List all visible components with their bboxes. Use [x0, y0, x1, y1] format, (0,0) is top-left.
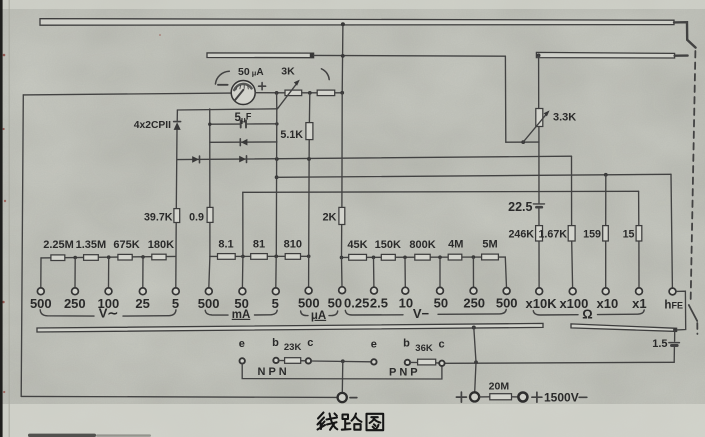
- svg-text:10: 10: [399, 296, 413, 311]
- svg-text:c: c: [438, 339, 444, 351]
- svg-text:hFE: hFE: [664, 299, 683, 311]
- svg-text:100: 100: [98, 296, 120, 311]
- svg-text:23K: 23K: [284, 342, 302, 353]
- svg-text:1.5: 1.5: [652, 338, 667, 350]
- svg-text:246K: 246K: [508, 228, 534, 240]
- svg-text:5: 5: [272, 296, 279, 311]
- svg-text:36K: 36K: [415, 343, 433, 354]
- svg-text:15: 15: [623, 228, 635, 240]
- svg-text:0.9: 0.9: [189, 211, 204, 223]
- svg-text:x10: x10: [597, 296, 619, 311]
- svg-text:250: 250: [64, 296, 86, 311]
- svg-text:1500V: 1500V: [544, 390, 579, 404]
- svg-text:50: 50: [234, 296, 248, 311]
- svg-text:1.67K: 1.67K: [538, 228, 567, 240]
- svg-text:b: b: [403, 338, 410, 350]
- svg-text:5: 5: [172, 296, 179, 311]
- svg-text:50 μA: 50 μA: [238, 66, 264, 78]
- svg-text:81: 81: [253, 239, 265, 251]
- svg-text:25: 25: [135, 296, 149, 311]
- svg-text:8.1: 8.1: [218, 239, 233, 251]
- svg-text:e: e: [239, 338, 245, 350]
- svg-text:μA: μA: [311, 310, 326, 322]
- svg-text:150K: 150K: [375, 239, 401, 251]
- svg-text:2.25M: 2.25M: [43, 239, 74, 251]
- svg-text:500: 500: [198, 296, 220, 311]
- svg-text:PNP: PNP: [389, 367, 421, 379]
- svg-text:b: b: [272, 337, 279, 349]
- svg-text:675K: 675K: [113, 239, 139, 251]
- svg-text:50: 50: [434, 296, 448, 311]
- svg-text:39.7K: 39.7K: [144, 211, 173, 223]
- svg-text:810: 810: [284, 239, 302, 251]
- svg-text:800K: 800K: [409, 239, 435, 251]
- svg-text:180K: 180K: [148, 239, 174, 251]
- svg-text:22.5: 22.5: [508, 200, 532, 214]
- svg-text:500: 500: [298, 296, 320, 311]
- svg-text:NPN: NPN: [258, 366, 290, 378]
- svg-text:45K: 45K: [347, 239, 367, 251]
- svg-text:159: 159: [583, 228, 601, 240]
- svg-text:e: e: [371, 339, 377, 351]
- svg-text:0.25: 0.25: [344, 296, 369, 311]
- svg-text:5.1K: 5.1K: [280, 129, 303, 141]
- svg-text:50: 50: [328, 296, 342, 311]
- svg-text:x100: x100: [559, 296, 588, 311]
- svg-text:3.3K: 3.3K: [553, 112, 576, 124]
- svg-text:250: 250: [463, 296, 485, 311]
- svg-text:2K: 2K: [322, 212, 336, 224]
- svg-text:c: c: [307, 337, 313, 349]
- svg-text:x1: x1: [632, 296, 646, 311]
- svg-text:500: 500: [30, 296, 52, 311]
- svg-text:1.35M: 1.35M: [76, 239, 107, 251]
- svg-text:V−: V−: [413, 306, 430, 321]
- svg-text:x10K: x10K: [526, 296, 558, 311]
- svg-text:4M: 4M: [448, 239, 463, 251]
- svg-text:5M: 5M: [482, 239, 497, 251]
- svg-text:4x2CPII: 4x2CPII: [134, 120, 171, 131]
- svg-text:2.5: 2.5: [370, 296, 388, 311]
- svg-text:500: 500: [496, 296, 518, 311]
- svg-text:20M: 20M: [489, 380, 510, 392]
- svg-text:3K: 3K: [281, 66, 295, 78]
